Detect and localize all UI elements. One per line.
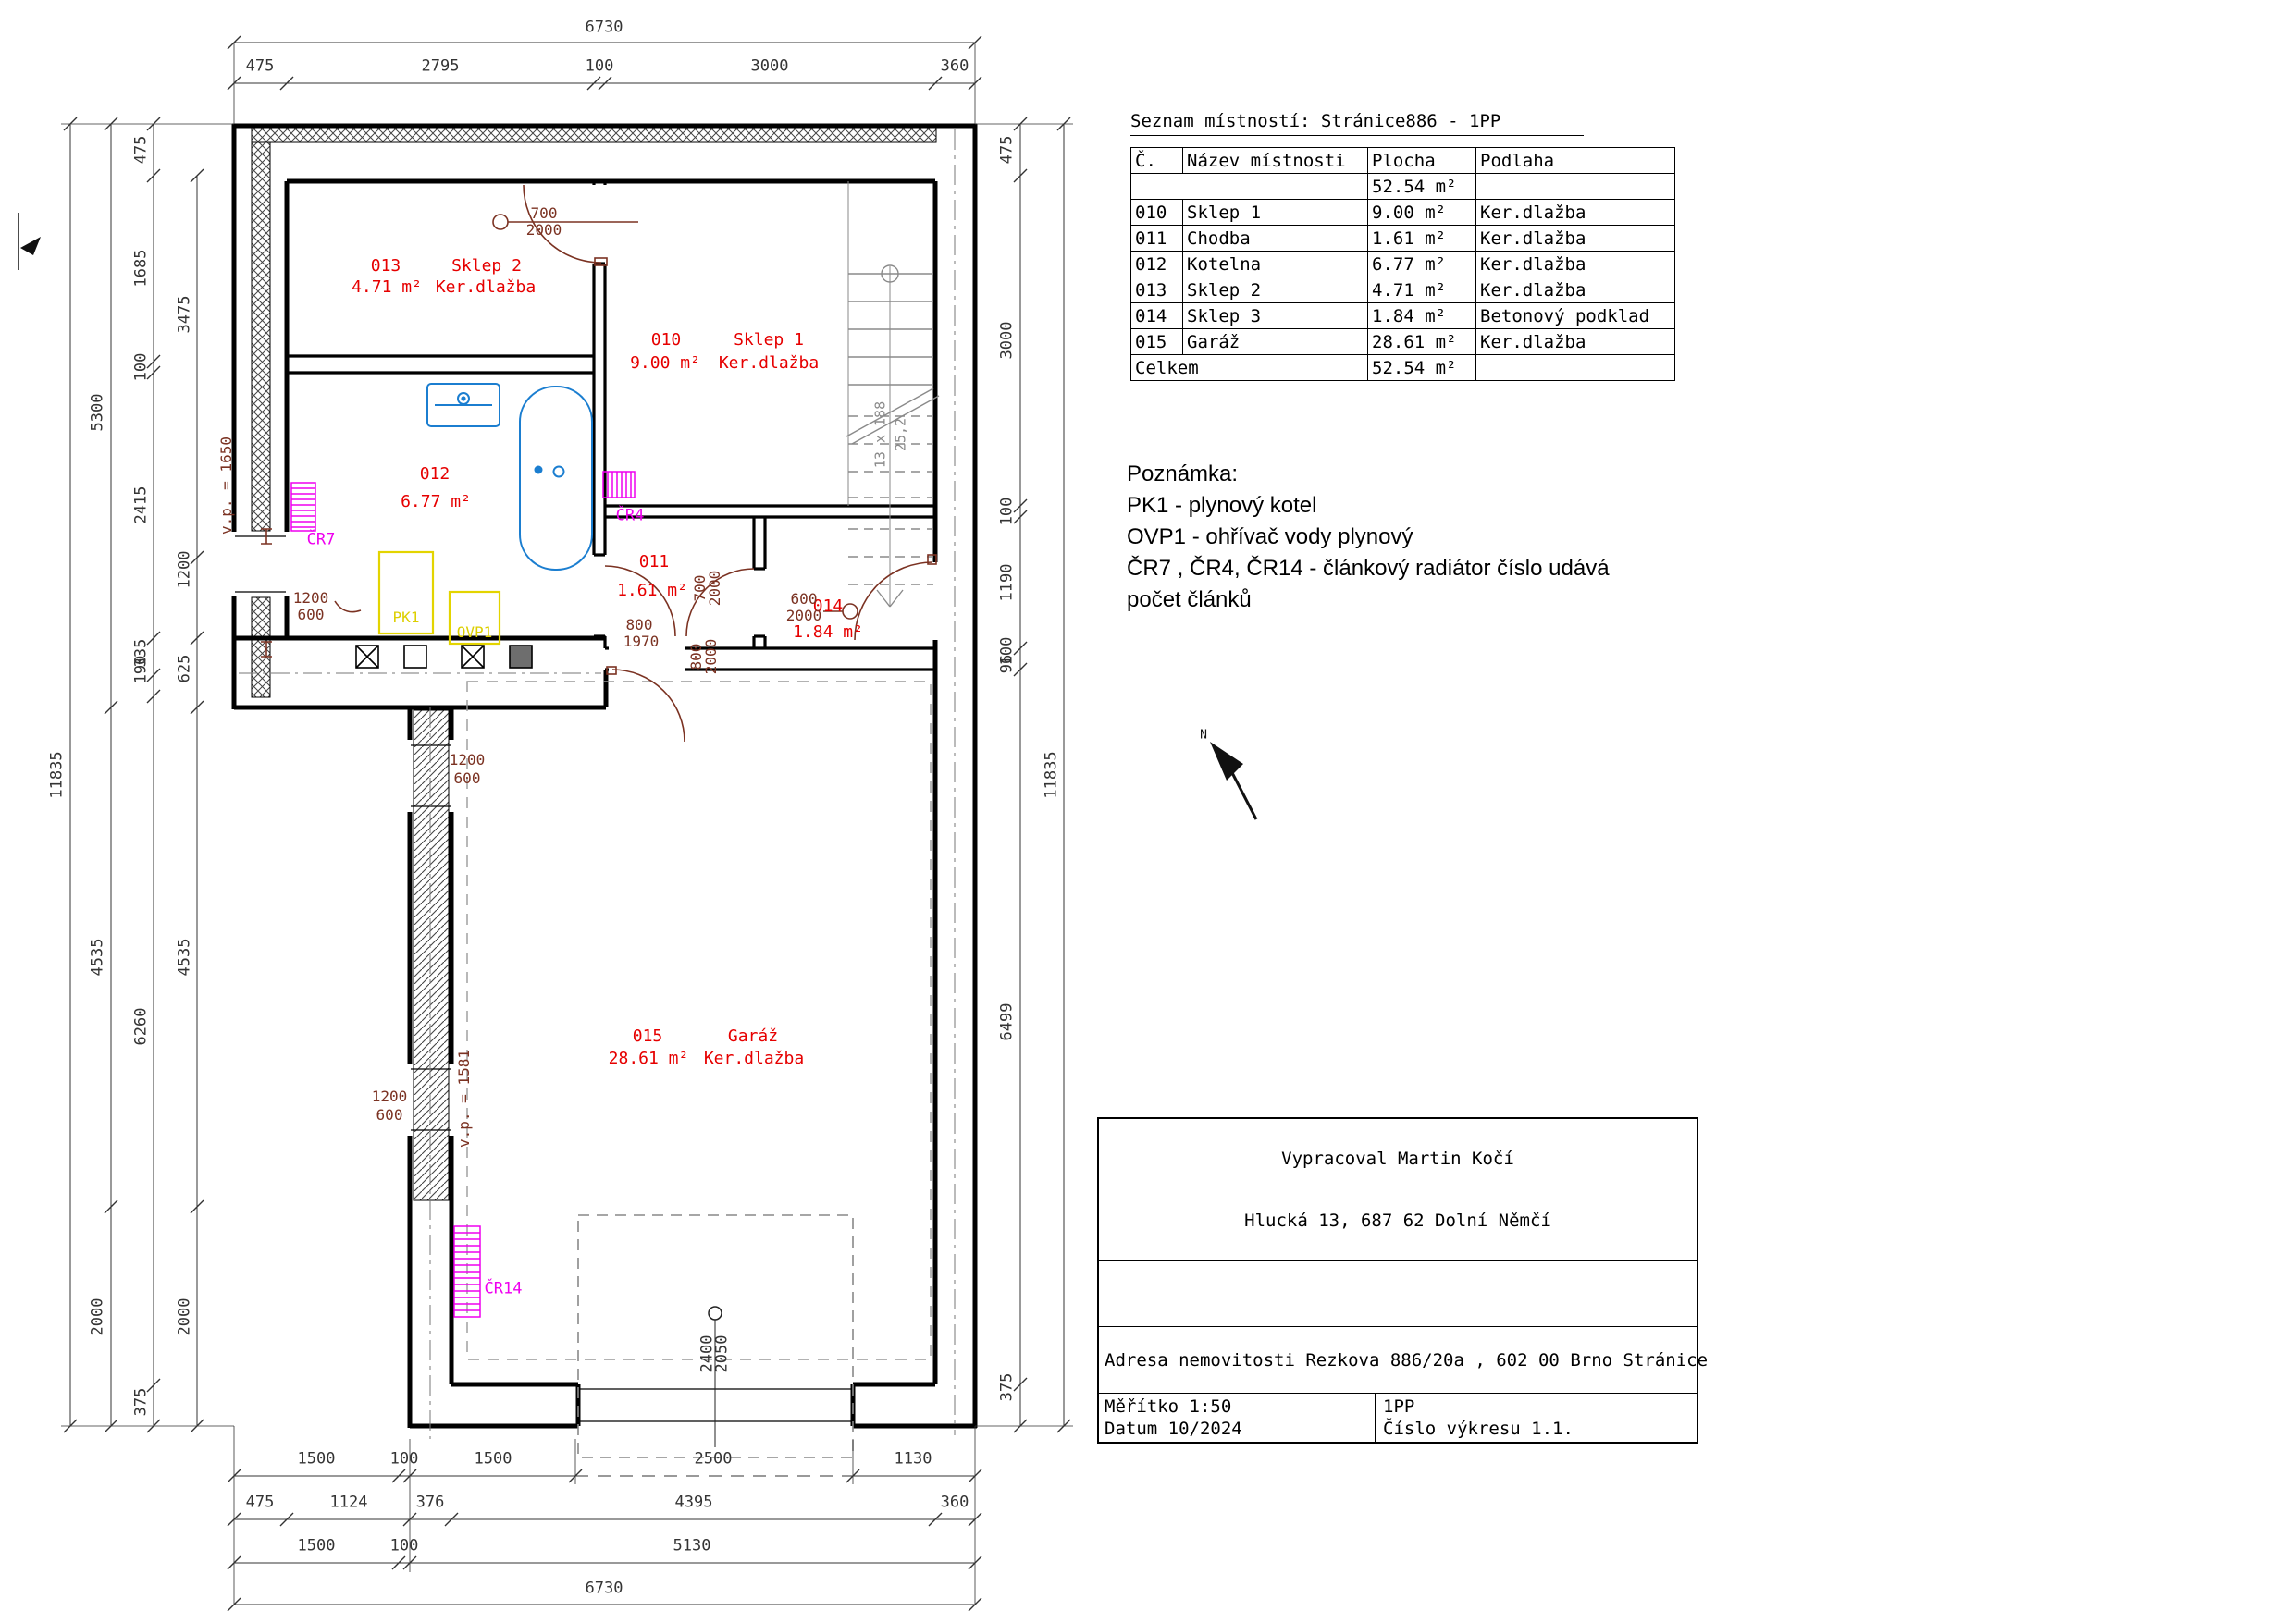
room-list: Seznam místností: Stránice886 - 1PP Č.Ná…	[1130, 111, 1685, 381]
plan-label: OVP1	[457, 625, 493, 640]
plan-label: 4.71 m²	[352, 279, 422, 296]
room-cell: Sklep 2	[1183, 277, 1368, 303]
floorplan-canvas: 6730475279510030003601500100150025001130…	[0, 0, 2296, 1623]
plan-label: 800	[626, 618, 653, 633]
room-cell: 6.77 m²	[1368, 252, 1476, 277]
plan-label: ČR4	[616, 509, 645, 524]
plan-label: 375	[1000, 1373, 1016, 1402]
plan-label: 2000	[526, 223, 562, 238]
plan-label: 1970	[623, 634, 660, 649]
plan-label: Ker.dlažba	[436, 279, 536, 296]
table-row: 012Kotelna6.77 m²Ker.dlažba	[1131, 252, 1675, 277]
plan-label: 1500	[298, 1539, 336, 1555]
table-row: 013Sklep 24.71 m²Ker.dlažba	[1131, 277, 1675, 303]
top-wall-insulation-hatch	[252, 128, 936, 142]
room-cell: 4.71 m²	[1368, 277, 1476, 303]
room-cell: Ker.dlažba	[1476, 226, 1675, 252]
left-wall-insulation-hatch	[252, 142, 270, 531]
plan-label: 010	[651, 332, 682, 349]
subtotal-cell	[1131, 174, 1368, 200]
plan-label: 1190	[1000, 564, 1016, 602]
plan-label: ČR7	[307, 533, 336, 548]
note-line: OVP1 - ohřívač vody plynový	[1127, 522, 1700, 553]
plan-label: Sklep 1	[734, 332, 804, 349]
plan-label: 1200	[178, 551, 193, 589]
plan-label: PK1	[393, 610, 420, 625]
plan-label: 3475	[178, 296, 193, 334]
plan-label: 012	[420, 466, 451, 483]
room-cell: 28.61 m²	[1368, 329, 1476, 355]
title-block-floor: 1PP	[1383, 1396, 1697, 1419]
axis-lines	[430, 129, 955, 1439]
table-row: 011Chodba1.61 m²Ker.dlažba	[1131, 226, 1675, 252]
bathtub	[520, 387, 592, 570]
plan-label: 015	[633, 1028, 663, 1045]
plan-label: 600	[376, 1108, 403, 1123]
plan-label: 2415	[134, 486, 150, 524]
column-header: Plocha	[1368, 148, 1476, 174]
plan-label: 475	[134, 136, 150, 165]
table-row: 014Sklep 31.84 m²Betonový podklad	[1131, 303, 1675, 329]
plan-label: 013	[371, 258, 401, 275]
total-area: 52.54 m²	[1368, 355, 1476, 381]
title-block: Vypracoval Martin Kočí Hlucká 13, 687 62…	[1097, 1117, 1698, 1444]
room-cell: Sklep 1	[1183, 200, 1368, 226]
plan-label: Ker.dlažba	[719, 355, 819, 372]
garage-wall-hatch	[414, 710, 449, 1200]
garage-door-leader	[709, 1307, 722, 1447]
note-line: PK1 - plynový kotel	[1127, 490, 1700, 522]
plan-label: N	[1200, 730, 1207, 742]
room-cell: 010	[1131, 200, 1183, 226]
plan-label: 2000	[178, 1298, 193, 1336]
plan-label: 1200	[293, 591, 329, 606]
room-cell: 011	[1131, 226, 1183, 252]
plan-label: 375	[134, 1388, 150, 1417]
plan-label: Ker.dlažba	[704, 1051, 804, 1067]
plan-label: 13 x 188	[874, 401, 888, 468]
dimension-lines	[61, 36, 1073, 1611]
plan-label: 1.61 m²	[617, 583, 687, 599]
plan-label: 6.77 m²	[401, 494, 471, 510]
room-cell: Kotelna	[1183, 252, 1368, 277]
room-cell: Ker.dlažba	[1476, 329, 1675, 355]
plan-label: 5130	[673, 1539, 711, 1555]
radiator-cr7	[291, 483, 315, 531]
plan-label: Sklep 2	[451, 258, 522, 275]
room-cell: 014	[1131, 303, 1183, 329]
plan-label: 2050	[715, 1335, 731, 1373]
column-header: Č.	[1131, 148, 1183, 174]
plan-label: 600	[791, 592, 818, 607]
section-symbols	[239, 646, 601, 673]
room-cell: 1.84 m²	[1368, 303, 1476, 329]
note-line: ČR7 , ČR4, ČR14 - článkový radiátor čísl…	[1127, 553, 1700, 584]
plan-label: 1685	[134, 250, 150, 288]
stairs	[846, 181, 939, 607]
plan-label: 360	[941, 59, 969, 75]
plan-label: 6499	[1000, 1003, 1016, 1041]
notes-title: Poznámka:	[1127, 459, 1700, 490]
plan-label: 96	[1000, 655, 1016, 673]
room-cell: 012	[1131, 252, 1183, 277]
plan-label: 11835	[1044, 751, 1060, 798]
plan-label: 1500	[298, 1452, 336, 1468]
room-cell: Betonový podklad	[1476, 303, 1675, 329]
table-row: 015Garáž28.61 m²Ker.dlažba	[1131, 329, 1675, 355]
title-block-property: Adresa nemovitosti Rezkova 886/20a , 602…	[1105, 1350, 1708, 1371]
room-cell: Ker.dlažba	[1476, 252, 1675, 277]
table-row: Č.Název místnostiPlochaPodlaha	[1131, 148, 1675, 174]
plan-label: 1500	[475, 1452, 512, 1468]
plan-label: 625	[178, 655, 193, 683]
table-row: 010Sklep 19.00 m²Ker.dlažba	[1131, 200, 1675, 226]
plan-label: 4395	[675, 1495, 713, 1511]
plan-label: 28.61 m²	[609, 1051, 689, 1067]
title-block-empty-row	[1099, 1261, 1697, 1327]
title-block-scale: Měřítko 1:50	[1105, 1396, 1375, 1419]
subtotal-cell	[1476, 174, 1675, 200]
plan-label: 2500	[695, 1452, 733, 1468]
note-line: počet článků	[1127, 584, 1700, 616]
plan-label: v.p. = 1581	[457, 1050, 472, 1148]
plan-label: 2000	[786, 609, 822, 623]
reference-mark-icon	[19, 213, 41, 270]
north-arrow-icon	[1210, 742, 1256, 819]
plan-label: 2000	[708, 571, 722, 607]
left-wall-insulation-hatch2	[252, 597, 270, 697]
title-block-author: Vypracoval Martin Kočí	[1281, 1149, 1514, 1169]
room-cell: Ker.dlažba	[1476, 200, 1675, 226]
plan-label: 100	[390, 1452, 419, 1468]
plan-label: ČR14	[485, 1282, 523, 1297]
plan-label: 1124	[330, 1495, 368, 1511]
plan-label: 600	[298, 608, 325, 622]
title-block-drawing-no: Číslo výkresu 1.1.	[1383, 1419, 1697, 1441]
notes: Poznámka: PK1 - plynový kotelOVP1 - ohří…	[1127, 459, 1700, 616]
radiators	[291, 472, 635, 1317]
room-cell: Chodba	[1183, 226, 1368, 252]
room-cell: 015	[1131, 329, 1183, 355]
plan-label: 2000	[91, 1298, 106, 1336]
plan-label: 1.84 m²	[793, 624, 863, 641]
plan-label: 6260	[134, 1008, 150, 1046]
table-row: Celkem52.54 m²	[1131, 355, 1675, 381]
notes-lines: PK1 - plynový kotelOVP1 - ohřívač vody p…	[1127, 490, 1700, 616]
room-cell: 9.00 m²	[1368, 200, 1476, 226]
plan-label: 100	[134, 353, 150, 382]
subtotal-area: 52.54 m²	[1368, 174, 1476, 200]
plan-label: 475	[246, 1495, 275, 1511]
title-block-date: Datum 10/2024	[1105, 1419, 1375, 1441]
plan-label: 475	[246, 59, 275, 75]
room-cell: Garáž	[1183, 329, 1368, 355]
total-label: Celkem	[1131, 355, 1368, 381]
plan-label: 700	[531, 206, 558, 221]
plan-label: 3000	[751, 59, 789, 75]
room-cell: Ker.dlažba	[1476, 277, 1675, 303]
plan-label: 3000	[1000, 322, 1016, 360]
plan-label: 4535	[178, 939, 193, 977]
plan-label: 9.00 m²	[630, 355, 700, 372]
plan-label: 1200	[372, 1089, 408, 1104]
plumbing-fixtures	[427, 384, 592, 570]
plan-label: v.p. = 1650	[219, 436, 234, 535]
plan-label: 6730	[586, 1581, 623, 1597]
plan-label: 190	[134, 656, 150, 684]
room-cell: Sklep 3	[1183, 303, 1368, 329]
column-header: Podlaha	[1476, 148, 1675, 174]
room-table: Č.Název místnostiPlochaPodlaha52.54 m²01…	[1130, 147, 1675, 381]
plan-label: 475	[1000, 136, 1016, 165]
plan-label: 011	[639, 554, 670, 571]
plan-label: 376	[416, 1495, 445, 1511]
plan-label: 6730	[586, 20, 623, 36]
plan-label: 100	[586, 59, 614, 75]
plan-label: 25,2	[895, 418, 908, 451]
room-cell: 1.61 m²	[1368, 226, 1476, 252]
plan-label: Garáž	[728, 1028, 778, 1045]
room-cell: 013	[1131, 277, 1183, 303]
table-row: 52.54 m²	[1131, 174, 1675, 200]
column-header: Název místnosti	[1183, 148, 1368, 174]
plan-label: 4535	[91, 939, 106, 977]
plan-label: 360	[941, 1495, 969, 1511]
plan-label: 1130	[895, 1452, 932, 1468]
total-cell	[1476, 355, 1675, 381]
plan-label: 1200	[450, 753, 486, 768]
plan-label: 600	[454, 771, 481, 786]
plan-label: 2795	[422, 59, 460, 75]
title-block-address: Hlucká 13, 687 62 Dolní Němčí	[1244, 1211, 1551, 1231]
plan-label: 5300	[91, 394, 106, 432]
plan-label: 2000	[704, 639, 719, 675]
plan-label: 11835	[50, 751, 66, 798]
room-list-title: Seznam místností: Stránice886 - 1PP	[1130, 111, 1584, 136]
plan-label: 100	[1000, 498, 1016, 526]
room-table-body: Č.Název místnostiPlochaPodlaha52.54 m²01…	[1131, 148, 1675, 381]
plan-label: 100	[390, 1539, 419, 1555]
